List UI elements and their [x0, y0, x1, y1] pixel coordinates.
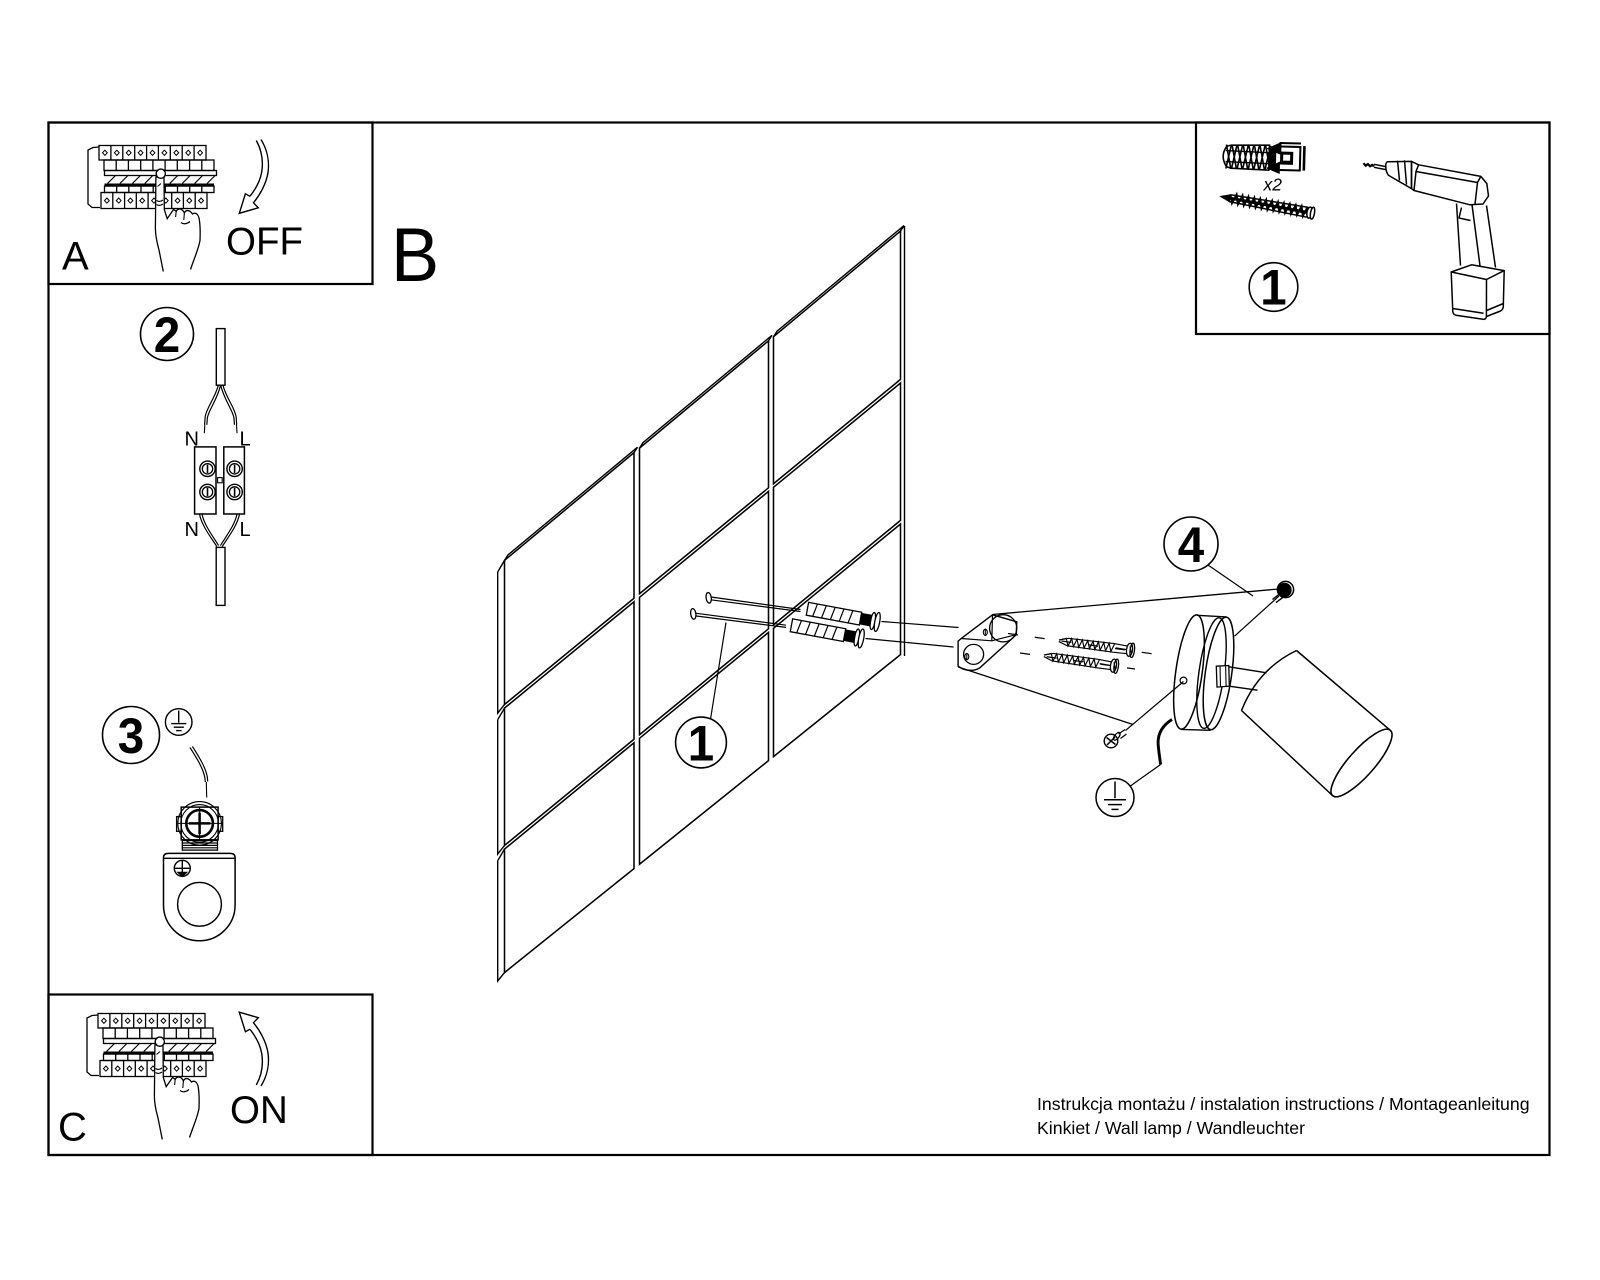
svg-text:L: L	[240, 519, 251, 541]
svg-text:1: 1	[688, 716, 714, 771]
svg-text:Instrukcja montażu / instalati: Instrukcja montażu / instalation instruc…	[1037, 1094, 1530, 1114]
svg-text:C: C	[58, 1106, 87, 1150]
svg-text:ON: ON	[230, 1089, 288, 1132]
svg-text:B: B	[391, 212, 439, 297]
svg-text:2: 2	[154, 308, 180, 363]
svg-text:OFF: OFF	[226, 221, 303, 264]
svg-text:3: 3	[118, 709, 144, 764]
svg-text:x2: x2	[1263, 175, 1283, 195]
svg-text:4: 4	[1178, 518, 1204, 573]
svg-text:N: N	[185, 519, 199, 541]
svg-text:A: A	[62, 235, 89, 279]
svg-text:1: 1	[1260, 260, 1286, 315]
svg-text:Kinkiet / Wall lamp / Wandleuc: Kinkiet / Wall lamp / Wandleuchter	[1037, 1118, 1305, 1138]
